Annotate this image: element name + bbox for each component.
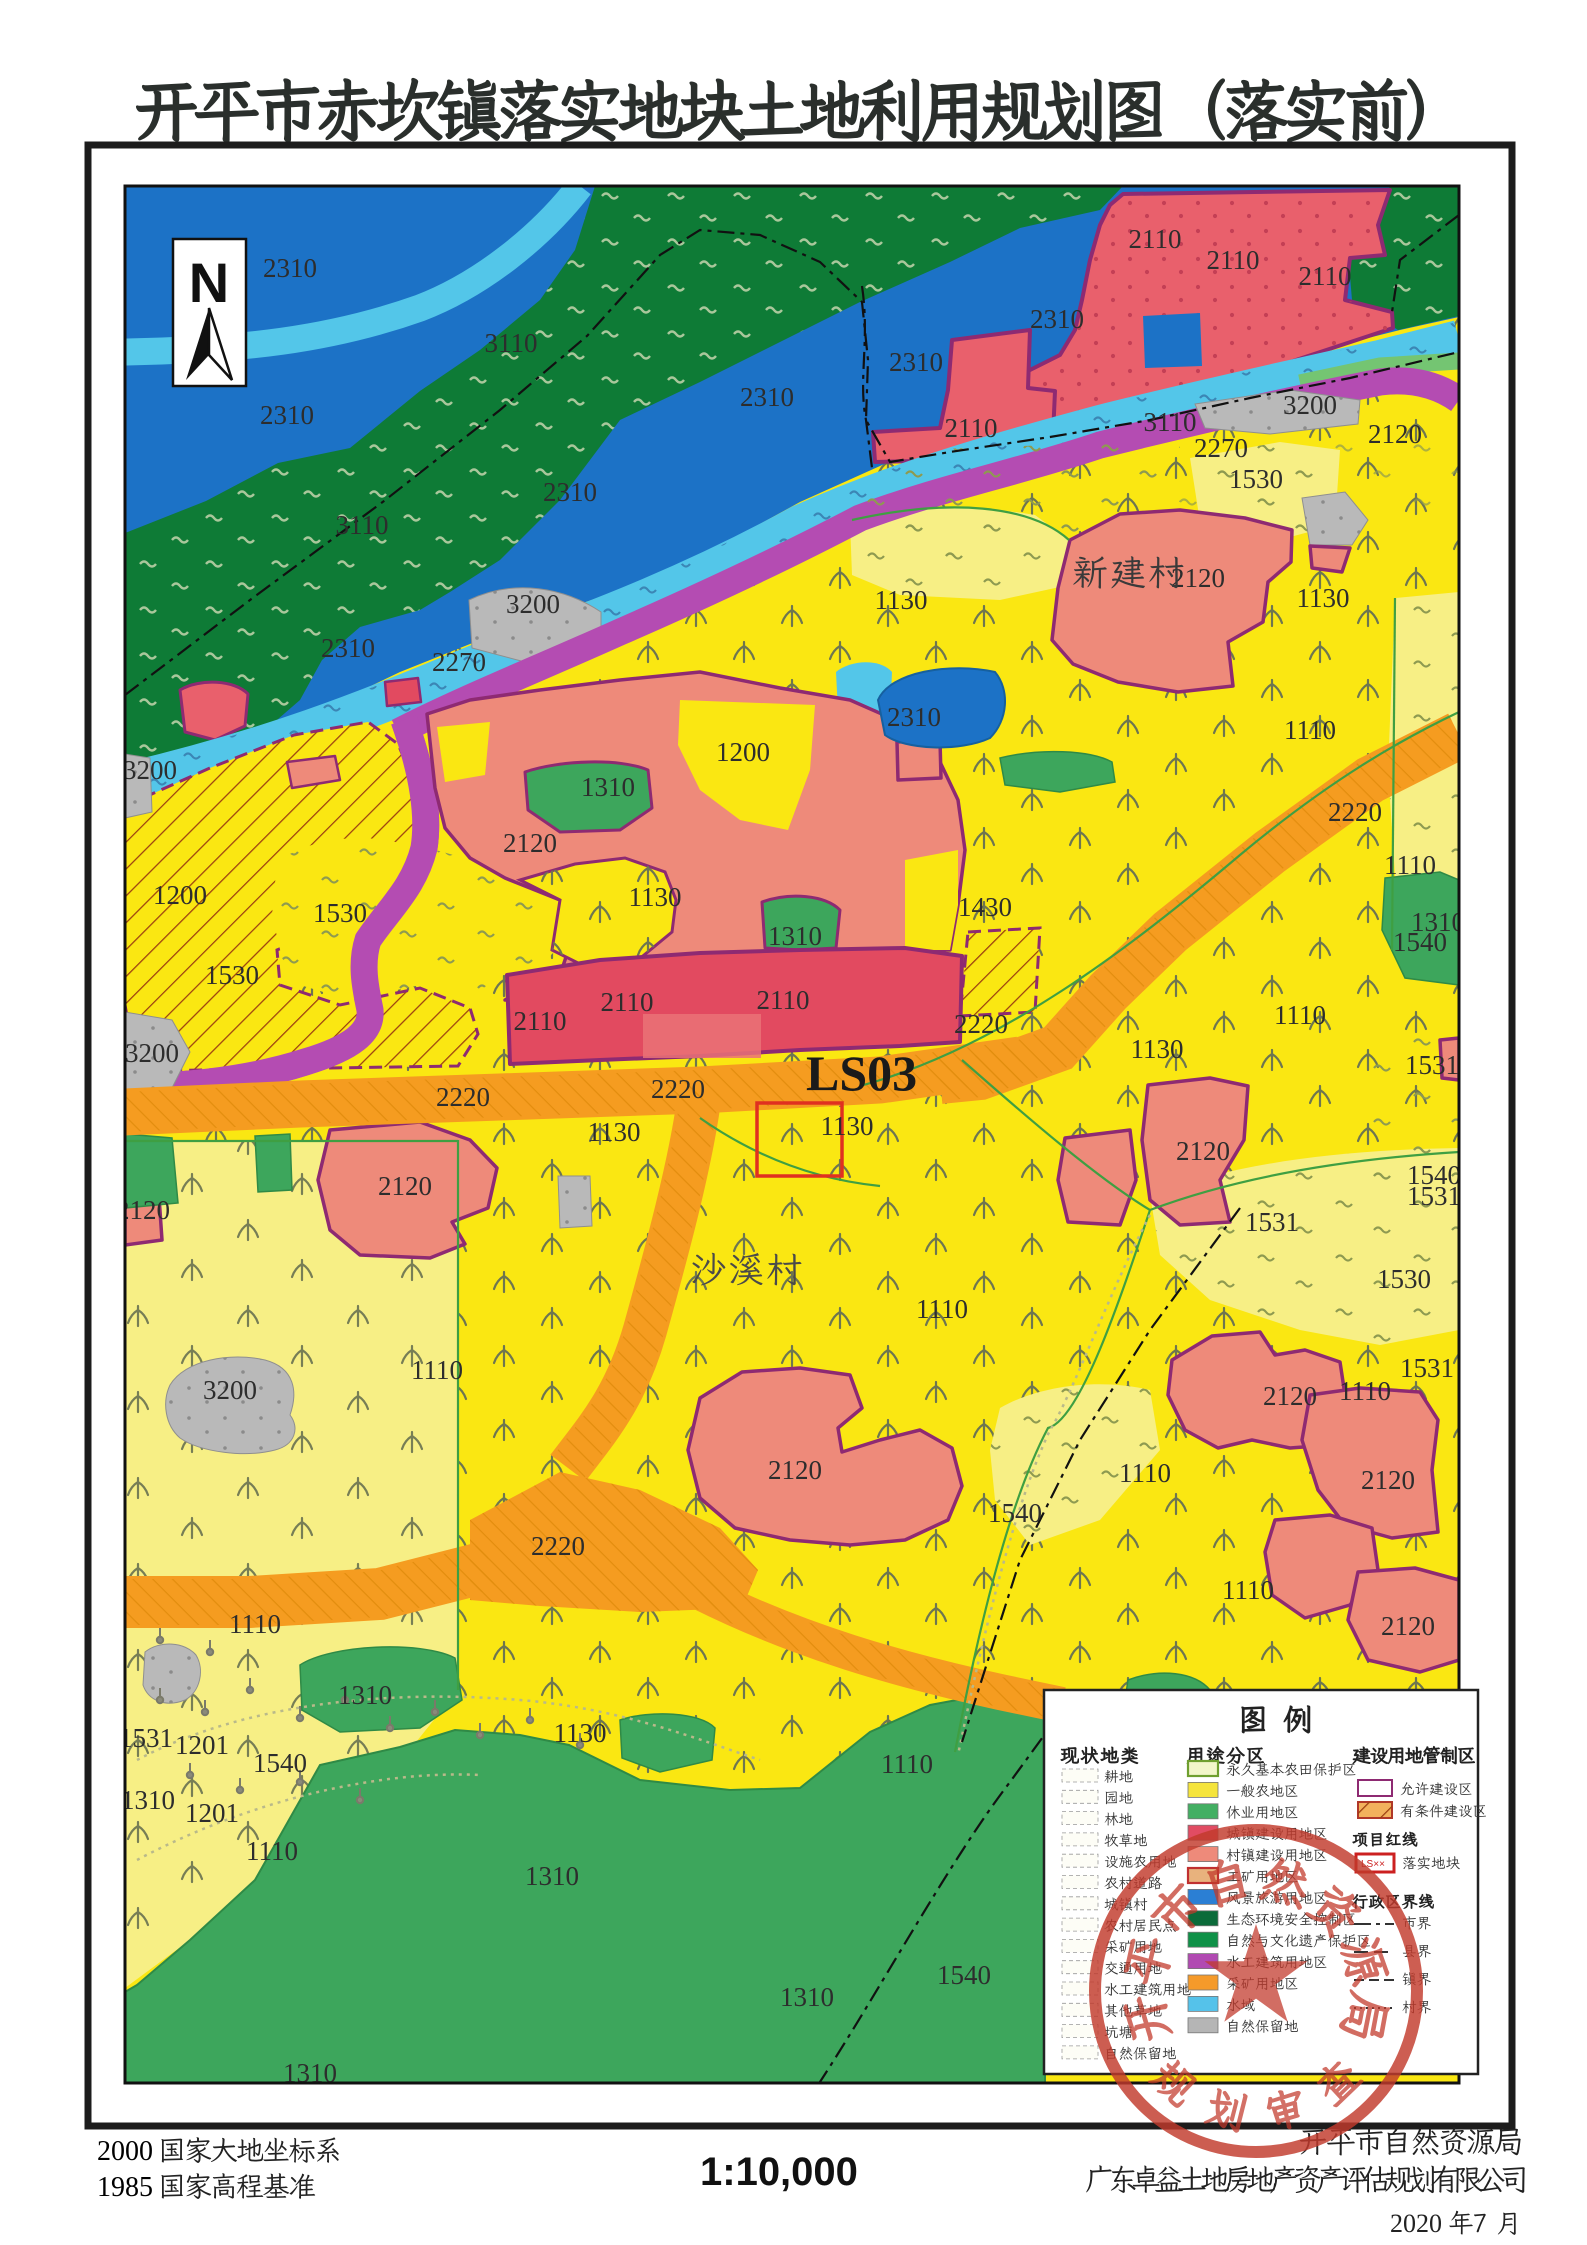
svg-text:1130: 1130 bbox=[1297, 583, 1350, 613]
svg-text:2120: 2120 bbox=[1381, 1611, 1435, 1641]
svg-text:1110: 1110 bbox=[411, 1355, 463, 1385]
svg-text:2110: 2110 bbox=[1299, 261, 1352, 291]
svg-text:1310: 1310 bbox=[121, 1785, 175, 1815]
svg-text:1110: 1110 bbox=[1339, 1376, 1391, 1406]
svg-text:1310: 1310 bbox=[338, 1680, 392, 1710]
svg-text:2310: 2310 bbox=[1030, 304, 1084, 334]
svg-text:1530: 1530 bbox=[205, 960, 259, 990]
svg-text:1110: 1110 bbox=[1284, 715, 1336, 745]
svg-text:1310: 1310 bbox=[1411, 907, 1465, 937]
svg-text:N: N bbox=[189, 251, 229, 314]
svg-text:2310: 2310 bbox=[260, 400, 314, 430]
svg-text:1310: 1310 bbox=[768, 921, 822, 951]
svg-text:1110: 1110 bbox=[1222, 1575, 1274, 1605]
svg-text:2310: 2310 bbox=[263, 253, 317, 283]
svg-text:3110: 3110 bbox=[485, 328, 538, 358]
svg-text:3200: 3200 bbox=[123, 755, 177, 785]
svg-text:2020: 2020 bbox=[1390, 2209, 1442, 2238]
svg-text:1985: 1985 bbox=[97, 2172, 153, 2203]
svg-text:2220: 2220 bbox=[954, 1009, 1008, 1039]
svg-text:1530: 1530 bbox=[1229, 464, 1283, 494]
svg-text:1430: 1430 bbox=[958, 892, 1012, 922]
svg-text:1540: 1540 bbox=[1407, 1160, 1461, 1190]
svg-text:2110: 2110 bbox=[757, 985, 810, 1015]
svg-text:2270: 2270 bbox=[1194, 433, 1248, 463]
svg-text:1200: 1200 bbox=[153, 880, 207, 910]
svg-text:2120: 2120 bbox=[1361, 1465, 1415, 1495]
svg-text:3110: 3110 bbox=[1144, 407, 1197, 437]
svg-text:1110: 1110 bbox=[246, 1836, 298, 1866]
svg-text:1110: 1110 bbox=[1384, 850, 1436, 880]
svg-text:1540: 1540 bbox=[988, 1498, 1042, 1528]
svg-text:2110: 2110 bbox=[514, 1006, 567, 1036]
svg-text:2120: 2120 bbox=[1368, 419, 1422, 449]
svg-text:1310: 1310 bbox=[525, 1861, 579, 1891]
svg-text:1540: 1540 bbox=[937, 1960, 991, 1990]
svg-text:2310: 2310 bbox=[740, 382, 794, 412]
svg-text:1130: 1130 bbox=[821, 1111, 874, 1141]
svg-text:1201: 1201 bbox=[185, 1798, 239, 1828]
svg-text:2220: 2220 bbox=[531, 1531, 585, 1561]
svg-text:2120: 2120 bbox=[378, 1171, 432, 1201]
svg-text:2310: 2310 bbox=[889, 347, 943, 377]
svg-text:1110: 1110 bbox=[229, 1609, 281, 1639]
svg-text:3200: 3200 bbox=[506, 589, 560, 619]
svg-text:2110: 2110 bbox=[945, 413, 998, 443]
svg-text:2270: 2270 bbox=[432, 647, 486, 677]
svg-text:1310: 1310 bbox=[581, 772, 635, 802]
svg-text:1130: 1130 bbox=[1131, 1034, 1184, 1064]
svg-text:1110: 1110 bbox=[881, 1749, 933, 1779]
svg-text:2110: 2110 bbox=[1129, 224, 1182, 254]
svg-text:2220: 2220 bbox=[436, 1082, 490, 1112]
svg-text:2310: 2310 bbox=[543, 477, 597, 507]
svg-text:3200: 3200 bbox=[125, 1038, 179, 1068]
svg-text:1110: 1110 bbox=[1119, 1458, 1171, 1488]
svg-text:2120: 2120 bbox=[1176, 1136, 1230, 1166]
svg-text:2120: 2120 bbox=[503, 828, 557, 858]
svg-text:2120: 2120 bbox=[1171, 563, 1225, 593]
svg-text:1130: 1130 bbox=[554, 1718, 607, 1748]
svg-text:2000: 2000 bbox=[97, 2136, 153, 2167]
svg-text:1110: 1110 bbox=[916, 1294, 968, 1324]
svg-text:2110: 2110 bbox=[601, 987, 654, 1017]
svg-text:1110: 1110 bbox=[1274, 1000, 1326, 1030]
svg-text:2310: 2310 bbox=[321, 633, 375, 663]
svg-text:1531: 1531 bbox=[1245, 1207, 1299, 1237]
svg-text:1130: 1130 bbox=[588, 1117, 641, 1147]
svg-text:1540: 1540 bbox=[253, 1748, 307, 1778]
svg-text:1130: 1130 bbox=[875, 585, 928, 615]
svg-text:2310: 2310 bbox=[887, 702, 941, 732]
svg-text:3200: 3200 bbox=[1283, 390, 1337, 420]
svg-text:2110: 2110 bbox=[1207, 245, 1260, 275]
svg-text:1200: 1200 bbox=[716, 737, 770, 767]
svg-text:1531: 1531 bbox=[1405, 1050, 1459, 1080]
svg-text:1531: 1531 bbox=[1400, 1353, 1454, 1383]
svg-text:1130: 1130 bbox=[629, 882, 682, 912]
svg-text:1530: 1530 bbox=[1377, 1264, 1431, 1294]
svg-text:3110: 3110 bbox=[336, 510, 389, 540]
svg-text:1531: 1531 bbox=[119, 1723, 173, 1753]
svg-text:2120: 2120 bbox=[1263, 1381, 1317, 1411]
svg-text:2120: 2120 bbox=[768, 1455, 822, 1485]
svg-text:1201: 1201 bbox=[175, 1730, 229, 1760]
svg-text:1310: 1310 bbox=[780, 1982, 834, 2012]
svg-text:2220: 2220 bbox=[1328, 797, 1382, 827]
svg-text:3200: 3200 bbox=[203, 1375, 257, 1405]
svg-text:2220: 2220 bbox=[651, 1074, 705, 1104]
svg-text:1530: 1530 bbox=[313, 898, 367, 928]
svg-text:1:10,000: 1:10,000 bbox=[700, 2150, 858, 2194]
svg-text:LS03: LS03 bbox=[806, 1045, 917, 1101]
